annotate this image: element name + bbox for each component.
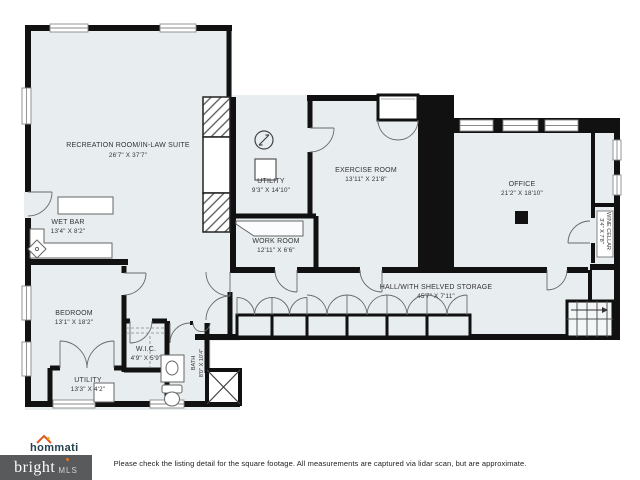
- dims-wic: 4'9" X 5'9": [131, 355, 162, 362]
- label-bedroom: BEDROOM: [55, 310, 93, 317]
- label-utility-upper: UTILITY: [257, 178, 285, 185]
- dims-wet-bar: 13'4" X 8'2": [51, 228, 85, 235]
- disclaimer-text: Please check the listing detail for the …: [0, 459, 640, 468]
- door-gap: [24, 192, 32, 218]
- label-office: OFFICE: [509, 181, 536, 188]
- dims-utility-upper: 9'3" X 14'10": [252, 187, 290, 194]
- sink-icon: [166, 361, 178, 375]
- label-utility-lower: UTILITY: [74, 377, 102, 384]
- label-work: WORK ROOM: [252, 238, 299, 245]
- mechanical-box: [207, 370, 240, 404]
- label-recreation: RECREATION ROOM/IN-LAW SUITE: [66, 142, 190, 149]
- breaker-box: [255, 159, 276, 180]
- label-wic: W.I.C.: [136, 346, 156, 353]
- chimney: [203, 97, 230, 232]
- dims-office: 21'2" X 18'10": [501, 190, 543, 197]
- label-exercise: EXERCISE ROOM: [335, 167, 397, 174]
- floor-plan-page: RECREATION ROOM/IN-LAW SUITE 26'7" X 37'…: [0, 0, 640, 480]
- svg-text:8'0" X 10'4": 8'0" X 10'4": [199, 349, 205, 378]
- svg-text:WINE CELLAR: WINE CELLAR: [605, 212, 611, 250]
- dims-hall: 45'7" X 7'11": [417, 293, 455, 300]
- dims-bedroom: 13'1" X 18'2": [55, 319, 93, 326]
- hommati-logo: hommati: [30, 442, 79, 454]
- stairs: [567, 301, 613, 337]
- dims-work: 12'11" X 6'6": [257, 247, 295, 254]
- toilet-bowl-icon: [165, 392, 180, 406]
- exercise-alcove: [378, 95, 418, 120]
- svg-text:3'4" X 7'8": 3'4" X 7'8": [598, 218, 604, 243]
- svg-text:BATH: BATH: [191, 356, 197, 371]
- office-post: [515, 211, 528, 224]
- dims-exercise: 13'11" X 21'8": [345, 176, 386, 183]
- floor-plan: RECREATION ROOM/IN-LAW SUITE 26'7" X 37'…: [0, 0, 640, 436]
- label-hall: HALL/WITH SHELVED STORAGE: [380, 284, 493, 291]
- dims-recreation: 26'7" X 37'7": [109, 152, 147, 159]
- dims-utility-lower: 13'3" X 4'2": [71, 386, 105, 393]
- label-wet-bar: WET BAR: [51, 219, 84, 226]
